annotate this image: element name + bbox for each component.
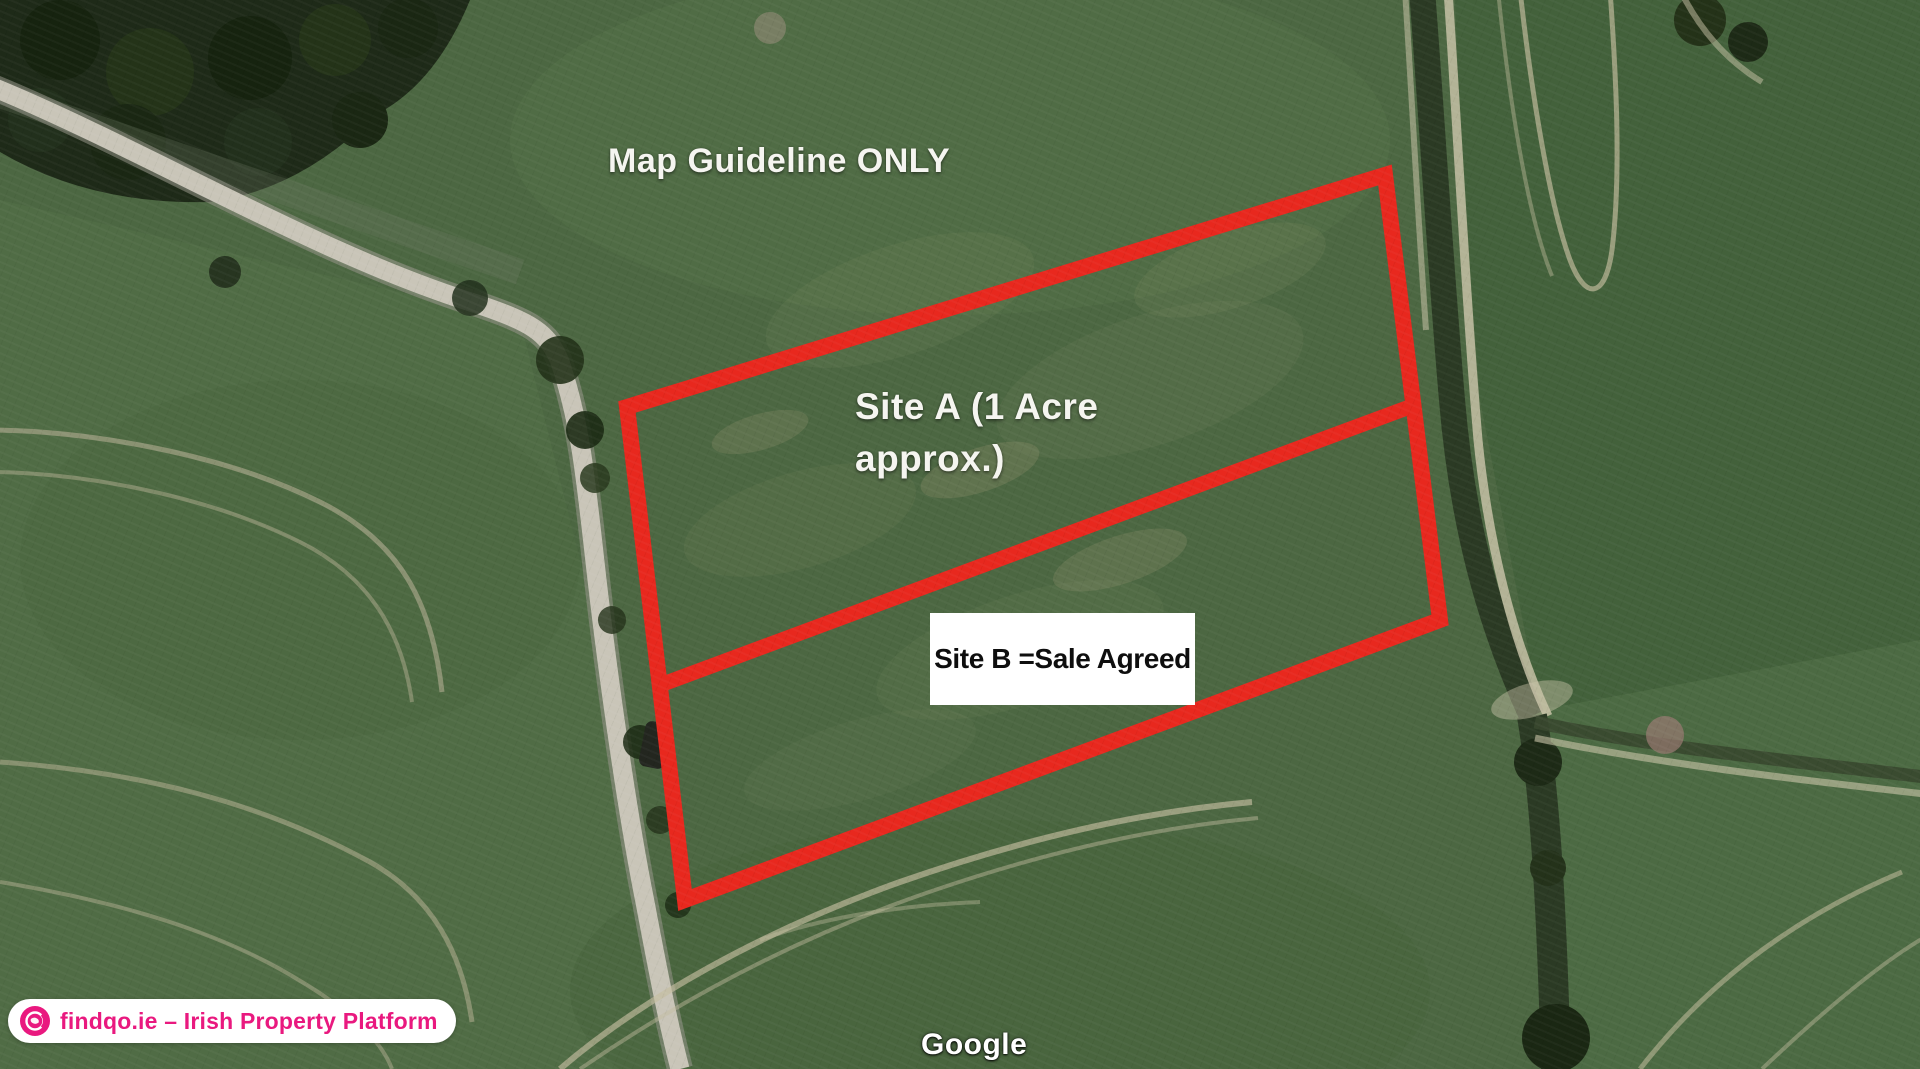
satellite-map: Map Guideline ONLY Site A (1 Acre approx… [0, 0, 1920, 1069]
map-guideline-note: Map Guideline ONLY [608, 142, 950, 181]
globe-icon [20, 1006, 50, 1036]
google-watermark: Google [921, 1028, 1027, 1062]
brand-badge-text: findqo.ie – Irish Property Platform [60, 1008, 438, 1035]
satellite-scene [0, 0, 1920, 1069]
site-a-label-line2: approx.) [855, 433, 1098, 485]
site-b-label: Site B =Sale Agreed [934, 643, 1191, 675]
site-a-label-line1: Site A (1 Acre [855, 381, 1098, 433]
site-b-label-box: Site B =Sale Agreed [930, 613, 1195, 705]
findqo-brand-badge: findqo.ie – Irish Property Platform [8, 999, 456, 1043]
site-a-label: Site A (1 Acre approx.) [855, 381, 1098, 485]
